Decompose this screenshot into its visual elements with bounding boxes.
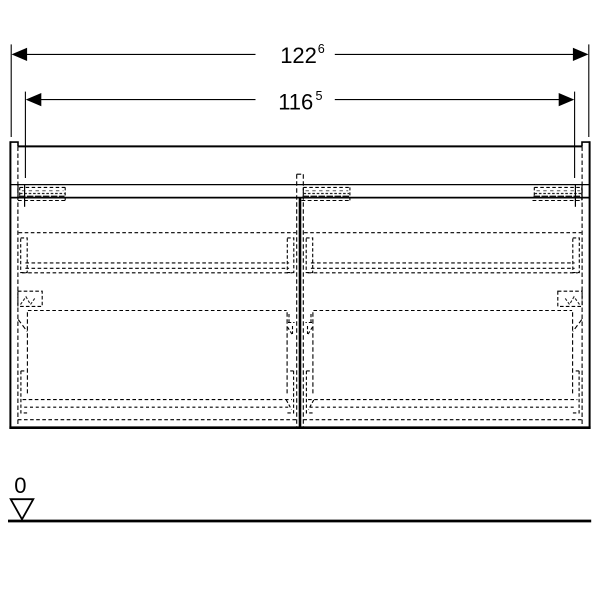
svg-text:0: 0: [14, 473, 26, 498]
